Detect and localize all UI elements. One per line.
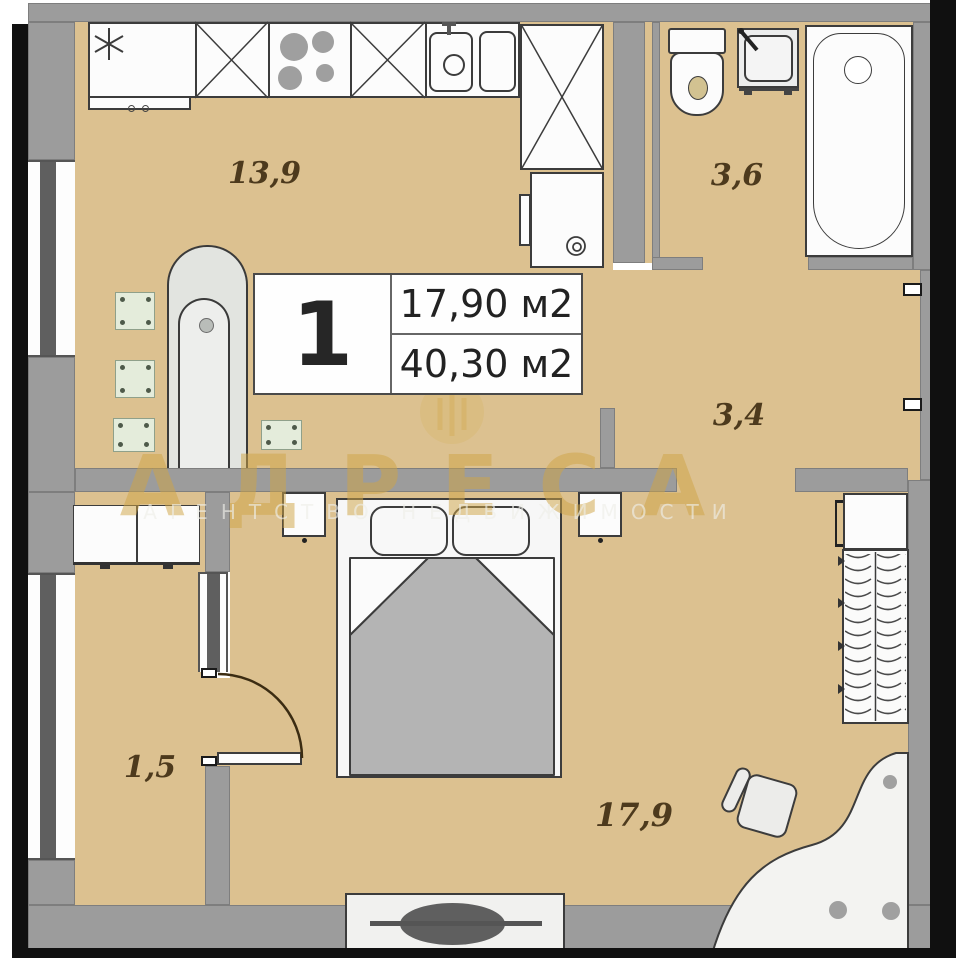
balcony-door-swing-arc — [210, 666, 310, 766]
washing-machine-handle — [519, 194, 531, 246]
stove-burner — [280, 33, 308, 61]
toilet-tank — [668, 28, 726, 54]
bathroom-door-opening — [703, 257, 808, 270]
kitchen-faucet-icon — [447, 24, 451, 35]
kitchen-area-label: 13,9 — [222, 156, 307, 191]
balcony-door-jamb-bottom — [201, 756, 217, 766]
entrance-jamb-bottom — [903, 398, 922, 411]
wall-bathroom-bottom-left — [652, 257, 703, 270]
glass-stool — [115, 292, 155, 330]
wall-top — [28, 3, 932, 22]
nightstand-handle — [598, 538, 603, 543]
wall-left-upper — [28, 22, 75, 160]
wardrobe-hook — [838, 641, 845, 651]
hallway-area-label: 3,4 — [703, 398, 775, 433]
frame-bar-bottom — [12, 948, 956, 958]
balcony-window — [28, 573, 75, 860]
wall-balcony-divider-bottom — [205, 766, 230, 905]
cabinet-handle — [100, 565, 110, 569]
watermark-subtitle: АГЕНТСТВО НЕДВИЖИМОСТИ — [50, 500, 820, 524]
rooms-count: 1 — [255, 275, 392, 393]
wall-slot — [645, 22, 652, 263]
stove-burner — [312, 31, 334, 53]
glass-stool — [115, 360, 155, 398]
toilet-bowl-hole — [688, 76, 708, 100]
wardrobe-hook — [838, 556, 845, 566]
bed-blanket — [344, 540, 560, 780]
wall-shaft-block — [613, 22, 645, 263]
kitchen-sink-basin — [429, 32, 473, 92]
bath-sink-foot — [744, 91, 752, 95]
balcony-door-jamb-top — [201, 668, 217, 678]
wardrobe-bracket — [835, 500, 843, 547]
frame-bar-right — [930, 0, 956, 950]
unit-area-card: 1 17,90 м2 40,30 м2 — [253, 273, 583, 395]
corner-desk — [700, 738, 912, 956]
tall-cabinet-x-icon — [520, 24, 604, 170]
cabinet-handle — [163, 565, 173, 569]
tv-bar — [370, 921, 542, 926]
balcony-door-window-unit — [198, 572, 228, 672]
entrance-jamb-top — [903, 283, 922, 296]
wardrobe-shelf — [843, 493, 908, 550]
wall-bedroom-top-right — [795, 468, 908, 492]
stove-burner — [278, 66, 302, 90]
kitchen-drainboard — [479, 31, 516, 92]
living-area-value: 17,90 м2 — [392, 275, 581, 335]
fridge-lip — [88, 96, 191, 110]
bathtub-drain — [844, 56, 872, 84]
wall-left-balcony-pier2 — [28, 860, 75, 905]
nightstand-handle — [302, 538, 307, 543]
balcony-area-label: 1,5 — [116, 750, 184, 785]
frame-bar-left — [12, 24, 28, 950]
floor-plan: 13,9 3,6 3,4 1,5 17,9 АДРЕСА АГЕНТСТВО Н… — [0, 0, 960, 960]
kitchen-window — [28, 160, 75, 357]
fridge-snowflake-icon — [92, 26, 126, 62]
wardrobe-hook — [838, 684, 845, 694]
bedroom-area-label: 17,9 — [590, 796, 678, 834]
total-area-value: 40,30 м2 — [392, 335, 581, 393]
washing-machine-drum-icon — [560, 230, 592, 262]
arched-niche-knob — [199, 318, 214, 333]
wall-bathroom-bottom-right — [808, 257, 913, 270]
wardrobe-hook — [838, 598, 845, 608]
wall-bathroom-left — [652, 22, 660, 270]
upper-cabinet-x-icon — [195, 22, 268, 98]
bath-sink-foot — [784, 91, 792, 95]
stove-burner — [316, 64, 334, 82]
bathroom-area-label: 3,6 — [703, 158, 771, 193]
upper-cabinet-x-icon — [350, 22, 425, 98]
bath-sink-faucet-icon — [735, 26, 765, 56]
wardrobe-hangers — [843, 550, 908, 723]
